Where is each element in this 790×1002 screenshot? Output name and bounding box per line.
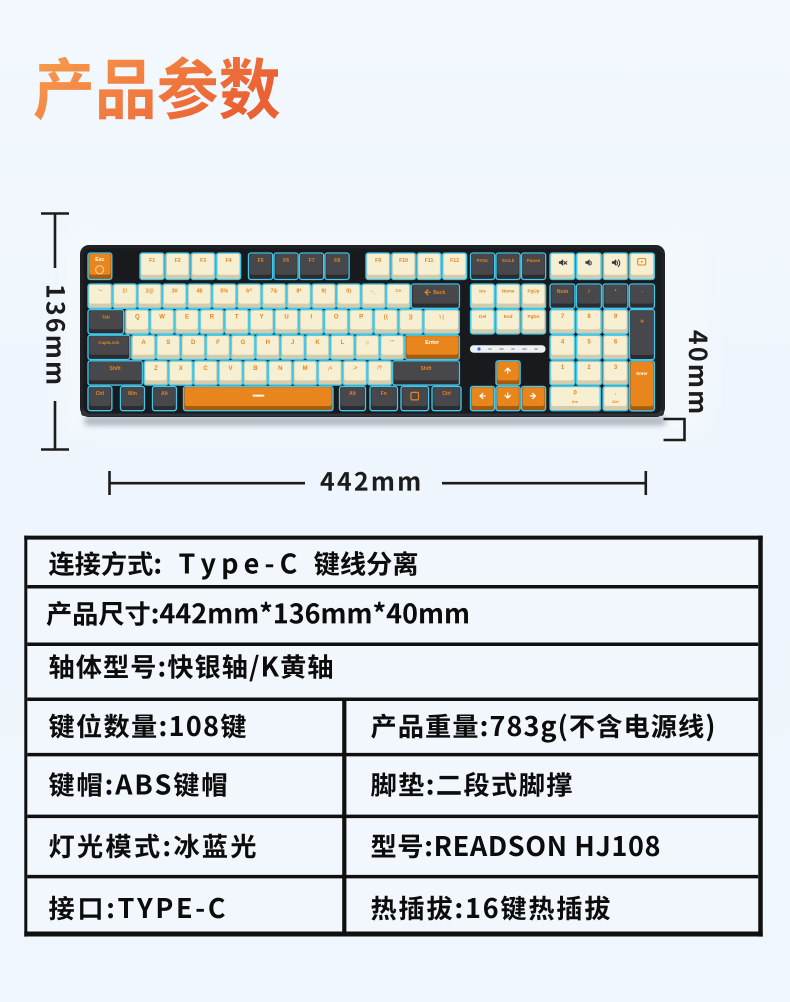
svg-text:Y: Y <box>260 315 264 321</box>
svg-text:E: E <box>185 315 189 321</box>
svg-text:Ins: Ins <box>572 399 579 404</box>
svg-text:0): 0) <box>346 289 351 295</box>
svg-text:9(: 9( <box>321 289 326 295</box>
svg-text:R: R <box>210 315 215 321</box>
svg-text:X: X <box>179 366 183 372</box>
svg-text:Home: Home <box>502 289 515 294</box>
svg-text:O: O <box>334 315 339 321</box>
svg-text:;:: ;: <box>366 340 370 346</box>
svg-text:8*: 8* <box>296 289 302 295</box>
svg-text:3#: 3# <box>172 289 178 295</box>
svg-text:G: G <box>241 340 246 346</box>
svg-text:Z: Z <box>154 366 158 372</box>
svg-text:Tab: Tab <box>102 314 110 320</box>
svg-text:Q: Q <box>135 315 140 321</box>
svg-text:+: + <box>640 319 644 326</box>
svg-text:F: F <box>216 340 220 346</box>
svg-text:Esc: Esc <box>95 257 104 263</box>
svg-text:-: - <box>641 289 643 295</box>
svg-text:F9: F9 <box>375 258 381 264</box>
svg-text:F7: F7 <box>309 258 315 264</box>
svg-text:F3: F3 <box>200 258 206 264</box>
svg-text:,<: ,< <box>328 366 333 372</box>
svg-text:Shift: Shift <box>110 366 121 372</box>
svg-text:[{: [{ <box>384 314 388 320</box>
svg-text:Fn: Fn <box>381 391 387 397</box>
svg-text:F11: F11 <box>425 258 434 264</box>
svg-text:U: U <box>284 315 288 321</box>
svg-text:L: L <box>341 340 345 346</box>
svg-text:F12: F12 <box>450 258 459 264</box>
svg-text:/?: /? <box>377 366 382 372</box>
svg-text:CapsLock: CapsLock <box>98 340 120 345</box>
svg-text:F4: F4 <box>226 258 232 264</box>
svg-text:7&: 7& <box>271 289 278 295</box>
svg-text:Pause: Pause <box>527 258 541 263</box>
svg-text:C: C <box>203 366 208 372</box>
svg-text:Alt: Alt <box>349 391 356 397</box>
svg-text:F1: F1 <box>149 258 155 264</box>
svg-text:Ctrl: Ctrl <box>442 391 451 397</box>
svg-text:B: B <box>253 366 258 372</box>
svg-text:F10: F10 <box>399 258 408 264</box>
svg-text:6^: 6^ <box>246 289 253 295</box>
svg-text:S: S <box>166 340 170 346</box>
svg-text:J: J <box>291 340 294 346</box>
svg-text:=+: =+ <box>395 289 401 295</box>
svg-text:Num: Num <box>557 289 569 295</box>
svg-text:Del: Del <box>612 399 618 404</box>
svg-text:`~: `~ <box>98 289 103 295</box>
svg-text:H: H <box>266 340 270 346</box>
svg-text:2@: 2@ <box>146 289 154 295</box>
svg-text:PgUp: PgUp <box>528 289 540 294</box>
svg-text:F6: F6 <box>283 258 289 264</box>
svg-text:F2: F2 <box>175 258 181 264</box>
svg-text:PrtSc: PrtSc <box>477 258 489 263</box>
svg-text:Shift: Shift <box>420 366 431 372</box>
svg-text:T: T <box>235 315 239 321</box>
svg-text:D: D <box>191 340 196 346</box>
svg-text:5%: 5% <box>220 289 228 295</box>
svg-text:F8: F8 <box>334 258 340 264</box>
svg-text:N: N <box>278 366 282 372</box>
svg-text:Enter: Enter <box>425 340 440 346</box>
svg-text:Win: Win <box>128 391 137 397</box>
svg-text:P: P <box>359 315 363 321</box>
svg-text:Ins: Ins <box>479 289 486 294</box>
svg-text:End: End <box>504 314 513 319</box>
svg-text:Alt: Alt <box>161 391 168 397</box>
svg-text:4$: 4$ <box>196 289 202 295</box>
svg-text:1!: 1! <box>122 289 127 295</box>
svg-text:'": '" <box>390 340 394 346</box>
svg-text:Back: Back <box>433 290 445 296</box>
svg-text:Enter: Enter <box>636 371 648 376</box>
svg-text:PgDn: PgDn <box>528 314 540 319</box>
svg-text:M: M <box>303 366 308 372</box>
svg-text:A: A <box>141 340 146 346</box>
svg-text:\ |: \ | <box>439 314 444 320</box>
svg-text:Ctrl: Ctrl <box>96 391 105 397</box>
svg-text:K: K <box>315 340 320 346</box>
svg-text:F5: F5 <box>258 258 264 264</box>
svg-text:ScrLk: ScrLk <box>502 258 515 263</box>
svg-text:W: W <box>159 315 165 321</box>
svg-text:.>: .> <box>353 366 358 372</box>
svg-text:V: V <box>228 366 232 372</box>
svg-text:Del: Del <box>479 314 486 319</box>
